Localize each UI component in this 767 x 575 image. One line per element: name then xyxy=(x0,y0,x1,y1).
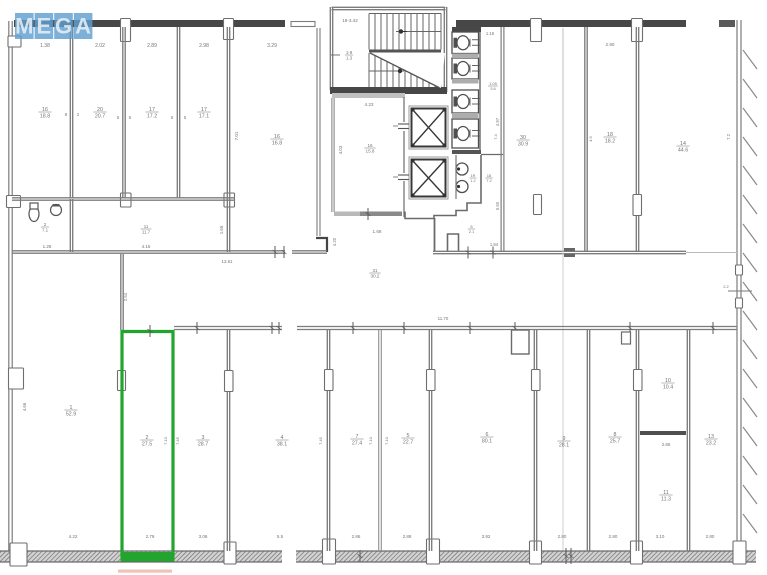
svg-text:52.9: 52.9 xyxy=(66,411,76,417)
svg-text:4.20: 4.20 xyxy=(332,237,337,246)
svg-text:20.7: 20.7 xyxy=(95,113,105,119)
svg-text:2.80: 2.80 xyxy=(706,534,715,539)
svg-text:7.10: 7.10 xyxy=(368,436,373,445)
svg-text:28.1: 28.1 xyxy=(559,442,569,448)
svg-text:7.01: 7.01 xyxy=(234,131,239,140)
svg-text:2.80: 2.80 xyxy=(609,534,618,539)
svg-text:17.2: 17.2 xyxy=(147,113,157,119)
svg-text:M: M xyxy=(15,14,33,39)
svg-text:18.8: 18.8 xyxy=(40,113,50,119)
svg-text:80.1: 80.1 xyxy=(482,438,492,444)
svg-text:7.10: 7.10 xyxy=(384,436,389,445)
svg-text:7.2: 7.2 xyxy=(726,133,731,139)
svg-text:16: 16 xyxy=(367,143,373,148)
svg-text:22.7: 22.7 xyxy=(403,439,413,445)
svg-text:2.1: 2.1 xyxy=(469,229,475,234)
svg-text:38.1: 38.1 xyxy=(277,441,287,447)
svg-text:1.16: 1.16 xyxy=(486,31,495,36)
svg-text:3.08: 3.08 xyxy=(199,534,208,539)
svg-text:4.23: 4.23 xyxy=(365,102,374,107)
svg-text:2.86: 2.86 xyxy=(662,442,671,447)
svg-text:16.8: 16.8 xyxy=(272,140,282,146)
svg-text:11.7: 11.7 xyxy=(142,229,151,234)
svg-text:19-3.42: 19-3.42 xyxy=(342,18,358,23)
svg-text:25.7: 25.7 xyxy=(610,438,620,444)
svg-text:7.2: 7.2 xyxy=(486,178,492,183)
svg-text:44.6: 44.6 xyxy=(678,147,688,153)
svg-text:11: 11 xyxy=(144,224,149,229)
svg-text:1.38: 1.38 xyxy=(40,43,50,49)
svg-text:11.3: 11.3 xyxy=(661,496,671,502)
svg-text:27.5: 27.5 xyxy=(142,441,152,447)
svg-text:1.65: 1.65 xyxy=(219,225,224,234)
svg-text:30.2: 30.2 xyxy=(371,274,380,279)
svg-text:3.92: 3.92 xyxy=(482,534,491,539)
svg-text:1.2: 1.2 xyxy=(470,179,475,183)
svg-text:5.5: 5.5 xyxy=(277,534,284,539)
svg-text:2.90: 2.90 xyxy=(606,42,615,47)
svg-text:1.28: 1.28 xyxy=(43,244,52,249)
svg-text:2.80: 2.80 xyxy=(558,534,567,539)
svg-text:3.6: 3.6 xyxy=(490,86,496,91)
svg-text:1-9: 1-9 xyxy=(346,50,353,55)
svg-text:2.79: 2.79 xyxy=(146,534,155,539)
svg-text:27.4: 27.4 xyxy=(352,440,362,446)
svg-text:10.4: 10.4 xyxy=(663,384,673,390)
svg-text:7.4: 7.4 xyxy=(493,133,498,139)
svg-text:2.86: 2.86 xyxy=(352,534,361,539)
svg-text:2.88: 2.88 xyxy=(403,534,412,539)
svg-text:4.97: 4.97 xyxy=(495,117,500,126)
svg-text:1R: 1R xyxy=(471,174,476,178)
svg-text:3.29: 3.29 xyxy=(267,43,277,49)
svg-text:A: A xyxy=(75,14,91,39)
svg-text:28.7: 28.7 xyxy=(198,441,208,447)
svg-text:4.16: 4.16 xyxy=(142,244,151,249)
svg-text:7.45: 7.45 xyxy=(175,436,180,445)
svg-text:7.1: 7.1 xyxy=(42,227,49,232)
svg-text:2.2: 2.2 xyxy=(723,284,729,289)
svg-text:E: E xyxy=(37,14,52,39)
svg-text:1.68: 1.68 xyxy=(373,229,382,234)
svg-text:G: G xyxy=(55,14,72,39)
svg-text:2.89: 2.89 xyxy=(147,43,157,49)
svg-text:2.54: 2.54 xyxy=(123,292,128,301)
svg-text:31: 31 xyxy=(372,268,378,273)
svg-text:5.50: 5.50 xyxy=(495,201,500,210)
svg-text:18.2: 18.2 xyxy=(605,138,615,144)
svg-text:17.1: 17.1 xyxy=(199,113,209,119)
svg-text:11.70: 11.70 xyxy=(438,316,449,321)
svg-text:1.94: 1.94 xyxy=(490,242,499,247)
svg-text:4.03: 4.03 xyxy=(338,145,343,154)
svg-text:1.3: 1.3 xyxy=(346,55,353,60)
svg-text:12.61: 12.61 xyxy=(222,259,234,264)
svg-text:23.2: 23.2 xyxy=(706,440,716,446)
svg-text:2.02: 2.02 xyxy=(95,43,105,49)
svg-text:2.98: 2.98 xyxy=(199,43,209,49)
svg-text:7.10: 7.10 xyxy=(163,436,168,445)
svg-text:4.22: 4.22 xyxy=(69,534,78,539)
svg-text:3.10: 3.10 xyxy=(656,534,665,539)
svg-text:4.9: 4.9 xyxy=(588,135,593,141)
svg-text:15.8: 15.8 xyxy=(366,149,375,154)
svg-text:30.9: 30.9 xyxy=(518,141,528,147)
svg-text:4.66: 4.66 xyxy=(22,402,27,411)
svg-text:7.45: 7.45 xyxy=(318,436,323,445)
